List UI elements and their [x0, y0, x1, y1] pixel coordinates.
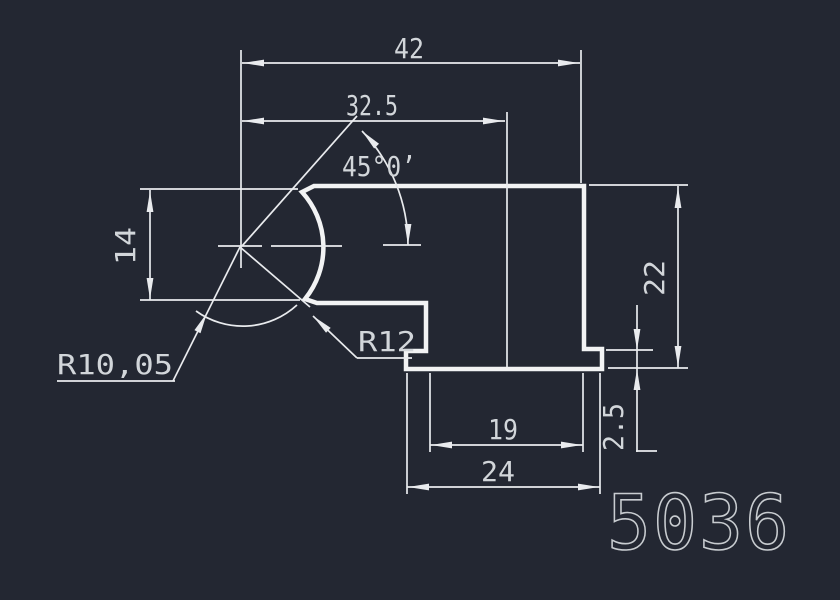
- arrow-left: [408, 484, 429, 491]
- radius-line-45deg: [242, 116, 357, 246]
- upper-width-label: 32.5: [346, 89, 398, 122]
- right-height-label: 22: [638, 260, 671, 296]
- dimension-fillet-radius: R12: [311, 314, 416, 358]
- arrow-left: [243, 60, 264, 67]
- arrow-down: [634, 329, 641, 350]
- slot-width-label: 19: [488, 413, 518, 446]
- arrow-right: [558, 60, 579, 67]
- groove-radius-arc: [196, 305, 297, 326]
- arrow-top: [147, 191, 154, 212]
- radius-line-down: [240, 247, 310, 307]
- arrow-right: [561, 442, 582, 449]
- dimension-left-height: 14: [109, 189, 300, 300]
- dimension-slot-width: 19: [430, 373, 583, 452]
- dimension-step-height: 2.5: [597, 305, 657, 452]
- left-height-label: 14: [109, 227, 142, 265]
- arrow-right: [578, 484, 599, 491]
- dimension-groove-radius: R10,05: [57, 247, 240, 381]
- arrow-left: [243, 118, 264, 125]
- part-number: 5036: [607, 478, 791, 567]
- chamfer-angle-label: 45°0’: [342, 150, 416, 183]
- arrow-upper: [360, 129, 379, 149]
- arrow-up: [634, 369, 641, 390]
- cad-canvas: 42 32.5 45°0’ 14 22 R10,05: [0, 0, 840, 600]
- profile-path: [302, 186, 602, 369]
- arrow-lower: [405, 224, 412, 245]
- base-width-label: 24: [481, 455, 515, 488]
- arrow-bottom: [675, 346, 682, 367]
- groove-radius-label: R10,05: [57, 348, 173, 381]
- arrow-right: [483, 118, 504, 125]
- arrow-top: [675, 187, 682, 208]
- cad-drawing: 42 32.5 45°0’ 14 22 R10,05: [0, 0, 840, 600]
- arrow-left: [431, 442, 452, 449]
- total-width-label: 42: [394, 32, 424, 65]
- arrow-bottom: [147, 278, 154, 299]
- fillet-radius-label: R12: [358, 325, 416, 358]
- step-height-label: 2.5: [597, 403, 630, 451]
- profile-outline: [302, 186, 602, 369]
